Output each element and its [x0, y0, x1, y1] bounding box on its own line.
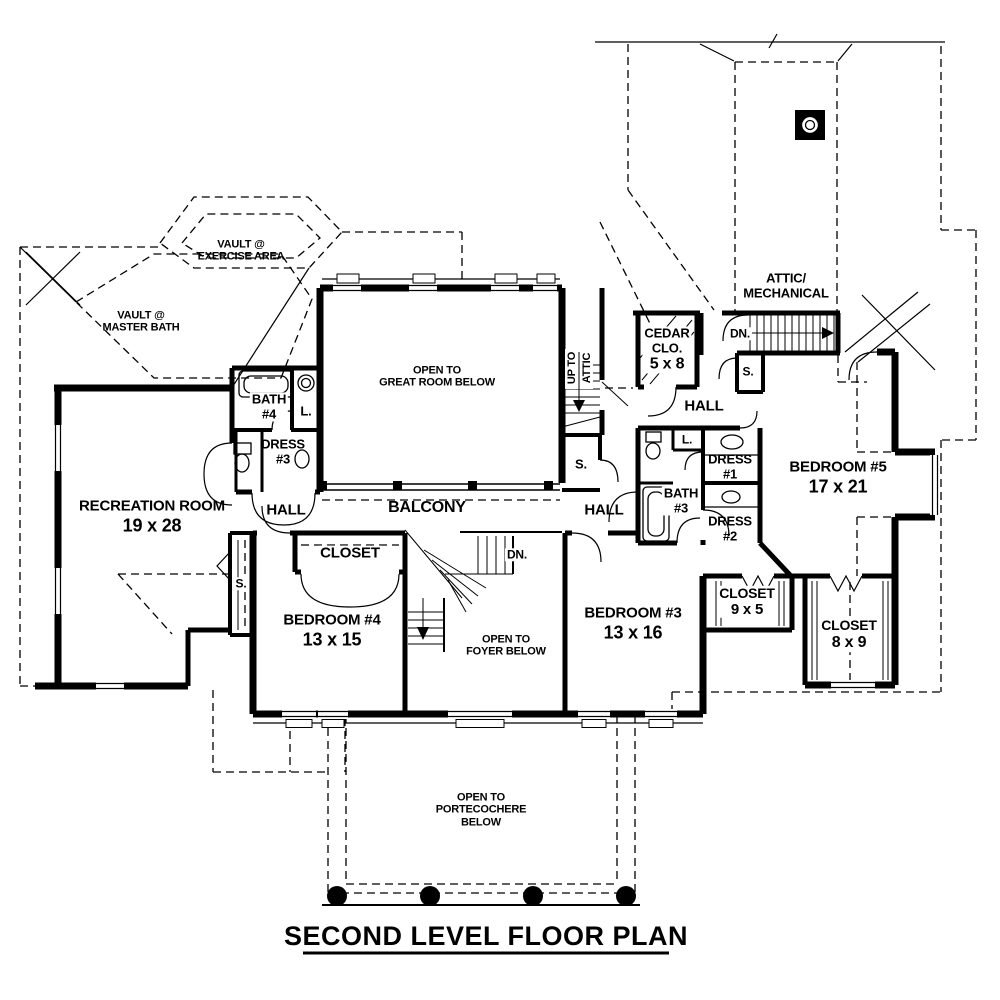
closet95-dims: 9 x 5 [719, 601, 775, 618]
stairs-attic-dn [750, 315, 834, 351]
bath4-line2: #4 [252, 407, 286, 422]
bath3-line2: #3 [664, 501, 698, 516]
label-closet-8x9: CLOSET 8 x 9 [819, 618, 879, 652]
dress1-line2: #1 [708, 467, 752, 482]
label-open-to-foyer: OPEN TO FOYER BELOW [466, 634, 546, 659]
recreation-name: RECREATION ROOM [79, 499, 225, 516]
label-balcony: BALCONY [388, 499, 466, 517]
label-hall-left: HALL [266, 503, 305, 520]
dress2-line1: DRESS [708, 514, 752, 529]
label-bedroom-5: BEDROOM #5 17 x 21 [789, 460, 886, 497]
attic-mech-line1: ATTIC/ [743, 271, 828, 286]
bedroom4-name: BEDROOM #4 [283, 613, 380, 630]
bedroom4-dims: 13 x 15 [283, 629, 380, 649]
closet95-name: CLOSET [719, 586, 775, 602]
floor-plan-page: VAULT @ EXERCISE AREA VAULT @ MASTER BAT… [0, 0, 1000, 1000]
bath4-line1: BATH [252, 392, 286, 407]
chimney-icon [795, 110, 825, 140]
vault-exercise-line1: VAULT @ [198, 239, 285, 251]
dress3-line2: #3 [261, 452, 305, 467]
attic-mech-line2: MECHANICAL [743, 286, 828, 301]
open-foyer-line2: FOYER BELOW [466, 646, 546, 658]
label-dn-foyer: DN. [505, 548, 529, 561]
bedroom5-dims: 17 x 21 [789, 476, 886, 496]
bedroom3-name: BEDROOM #3 [584, 606, 681, 623]
cedar-line2: CLO. [644, 341, 689, 356]
label-storage-rec: S. [234, 577, 249, 590]
label-dress-1: DRESS #1 [708, 452, 752, 481]
open-great-line1: OPEN TO [379, 365, 495, 377]
label-bedroom-4: BEDROOM #4 13 x 15 [283, 613, 380, 650]
label-dn-attic: DN. [728, 327, 752, 340]
label-dress-2: DRESS #2 [708, 514, 752, 543]
label-linen-bath4: L. [300, 405, 311, 420]
label-storage-stair: S. [575, 458, 587, 473]
porte-line1: OPEN TO [436, 792, 527, 804]
label-up-to-attic-1: UP TO [566, 352, 578, 384]
sink-bath4 [298, 375, 314, 391]
label-bath-4: BATH #4 [250, 392, 288, 421]
label-closet-9x5: CLOSET 9 x 5 [717, 586, 777, 618]
label-linen-bath3: L. [682, 433, 692, 446]
page-title: SECOND LEVEL FLOOR PLAN [284, 921, 688, 951]
porch [322, 886, 640, 906]
bath3-line1: BATH [664, 486, 698, 501]
recreation-dims: 19 x 28 [79, 515, 225, 535]
dress2-line2: #2 [708, 529, 752, 544]
label-recreation-room: RECREATION ROOM 19 x 28 [79, 499, 225, 536]
porte-line2: PORTECOCHERE [436, 804, 527, 816]
label-up-to-attic-2: ATTIC [581, 353, 593, 384]
label-bath-3: BATH #3 [662, 486, 700, 515]
dress1-line1: DRESS [708, 452, 752, 467]
porte-line3: BELOW [436, 816, 527, 828]
cedar-line1: CEDAR [644, 327, 689, 342]
vault-master-line2: MASTER BATH [102, 322, 179, 334]
vault-exercise-line2: EXERCISE AREA [198, 251, 285, 263]
closet89-name: CLOSET [821, 618, 877, 634]
sink-dress2 [705, 491, 758, 507]
label-cedar-closet: CEDAR CLO. 5 x 8 [642, 327, 691, 374]
label-hall-upper-right: HALL [684, 399, 723, 416]
label-closet-bedroom4: CLOSET [318, 546, 382, 563]
label-attic-mechanical: ATTIC/ MECHANICAL [741, 271, 830, 300]
label-dress-3: DRESS #3 [261, 437, 305, 466]
open-foyer-line1: OPEN TO [466, 634, 546, 646]
label-vault-exercise: VAULT @ EXERCISE AREA [198, 239, 285, 264]
toilet-bath3 [646, 432, 661, 459]
label-open-to-great-room: OPEN TO GREAT ROOM BELOW [379, 365, 495, 390]
bedroom5-name: BEDROOM #5 [789, 460, 886, 477]
label-hall-center: HALL [584, 503, 623, 520]
vault-master-line1: VAULT @ [102, 310, 179, 322]
balcony-rail [318, 481, 560, 490]
label-open-to-portecochere: OPEN TO PORTECOCHERE BELOW [436, 792, 527, 829]
cedar-dims: 5 x 8 [644, 356, 689, 374]
dress3-line1: DRESS [261, 437, 305, 452]
open-great-line2: GREAT ROOM BELOW [379, 377, 495, 389]
bedroom3-dims: 13 x 16 [584, 622, 681, 642]
porch-columns [327, 886, 636, 906]
label-storage-attic: S. [743, 365, 754, 378]
label-bedroom-3: BEDROOM #3 13 x 16 [584, 606, 681, 643]
label-vault-master-bath: VAULT @ MASTER BATH [102, 310, 179, 335]
closet89-dims: 8 x 9 [821, 634, 877, 652]
